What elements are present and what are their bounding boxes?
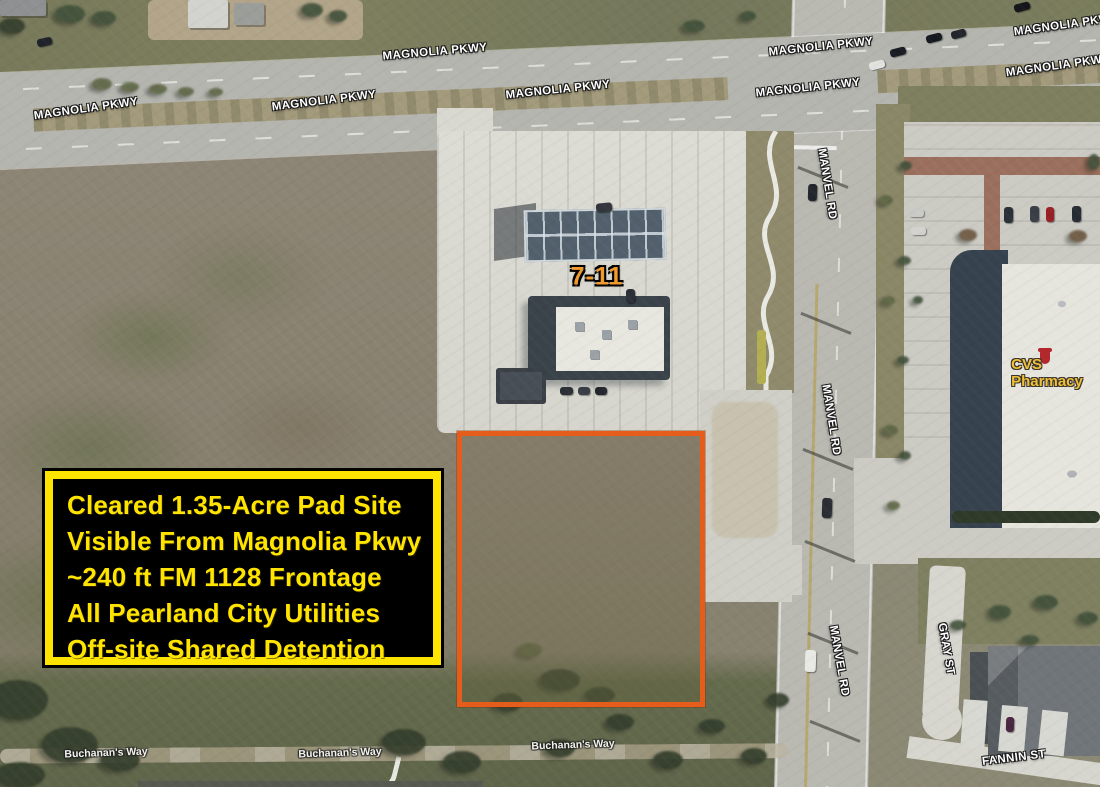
tree-icon	[900, 161, 912, 170]
tree-icon	[767, 693, 789, 707]
tree-icon	[879, 195, 893, 205]
car	[909, 209, 924, 217]
hedge-row	[952, 511, 1100, 523]
tree-icon	[443, 751, 481, 773]
tree-icon	[121, 82, 139, 92]
tree-icon	[913, 296, 923, 304]
car	[578, 387, 590, 395]
rooftop-unit	[575, 322, 584, 331]
tree-icon	[653, 751, 683, 769]
tree-icon	[209, 88, 223, 96]
detention-strip	[757, 330, 766, 384]
rooftop-unit	[628, 320, 637, 329]
tree-icon	[92, 11, 116, 25]
tree-icon	[55, 5, 85, 23]
cvs-building-edge	[950, 250, 1008, 528]
store-roof	[556, 307, 664, 371]
callout-line: All Pearland City Utilities	[67, 595, 433, 631]
car	[1030, 206, 1039, 222]
rooftop-unit	[590, 350, 599, 359]
center-line	[804, 284, 819, 787]
tree-icon	[0, 18, 25, 34]
tree-icon	[897, 356, 909, 364]
callout-line: Visible From Magnolia Pkwy	[67, 523, 433, 559]
tree-icon	[741, 748, 767, 764]
road-corner	[922, 700, 962, 740]
parking-strip	[960, 699, 987, 749]
tree-icon	[959, 229, 977, 241]
car	[1046, 207, 1054, 222]
gravel-area	[712, 402, 778, 538]
tree-icon	[0, 762, 45, 787]
brick-walkway	[904, 157, 1100, 175]
tree-icon	[887, 501, 900, 510]
shed-building	[188, 0, 228, 28]
tree-icon	[740, 11, 756, 21]
dumpster-enclosure	[496, 368, 546, 404]
callout-inner: Cleared 1.35-Acre Pad Site Visible From …	[45, 471, 441, 665]
rooftop-unit	[602, 330, 611, 339]
tree-icon	[1021, 635, 1039, 645]
car	[807, 183, 817, 200]
callout-line: ~240 ft FM 1128 Frontage	[67, 559, 433, 595]
car	[822, 498, 833, 518]
cvs-pharmacy-label: CVS Pharmacy	[1011, 356, 1083, 390]
tree-icon	[1088, 154, 1100, 170]
pad-site-outline	[457, 431, 705, 707]
serpentine-sidewalk	[746, 131, 794, 393]
shed-building	[234, 3, 264, 25]
aerial-map: Cleared 1.35-Acre Pad Site Visible From …	[0, 0, 1100, 787]
tree-icon	[950, 620, 966, 630]
car	[626, 289, 635, 303]
tree-icon	[329, 10, 347, 22]
car	[1072, 206, 1081, 222]
tree-icon	[699, 719, 725, 733]
tree-icon	[178, 87, 194, 96]
car	[1004, 207, 1013, 223]
car	[1006, 716, 1015, 731]
tree-icon	[301, 3, 323, 17]
tree-icon	[898, 256, 911, 265]
marketing-callout-box: Cleared 1.35-Acre Pad Site Visible From …	[42, 468, 444, 668]
tree-icon	[92, 78, 112, 90]
car	[911, 227, 926, 235]
callout-line: Off-site Shared Detention	[67, 631, 433, 667]
tree-icon	[683, 20, 705, 32]
house-roof	[0, 0, 46, 16]
callout-line: Cleared 1.35-Acre Pad Site	[67, 487, 433, 523]
car	[596, 202, 613, 213]
cvs-building-roof	[1002, 264, 1100, 528]
tree-icon	[1078, 612, 1098, 624]
tree-icon	[149, 84, 167, 94]
tree-icon	[899, 451, 911, 460]
tree-icon	[882, 296, 895, 305]
car	[595, 387, 607, 395]
tree-icon	[382, 729, 426, 755]
tree-icon	[989, 605, 1011, 619]
car	[804, 650, 816, 672]
roadside-green-strip	[746, 131, 794, 393]
driveway-apron	[748, 545, 802, 595]
car	[560, 387, 573, 395]
tree-icon	[606, 714, 634, 730]
tree-icon	[883, 425, 898, 435]
seven-eleven-label: 7-11	[571, 263, 624, 292]
pavement-edge	[138, 781, 483, 787]
tree-icon	[1034, 595, 1058, 609]
brick-walkway	[984, 157, 1000, 257]
fuel-canopy	[524, 208, 667, 262]
tree-icon	[1069, 230, 1087, 242]
